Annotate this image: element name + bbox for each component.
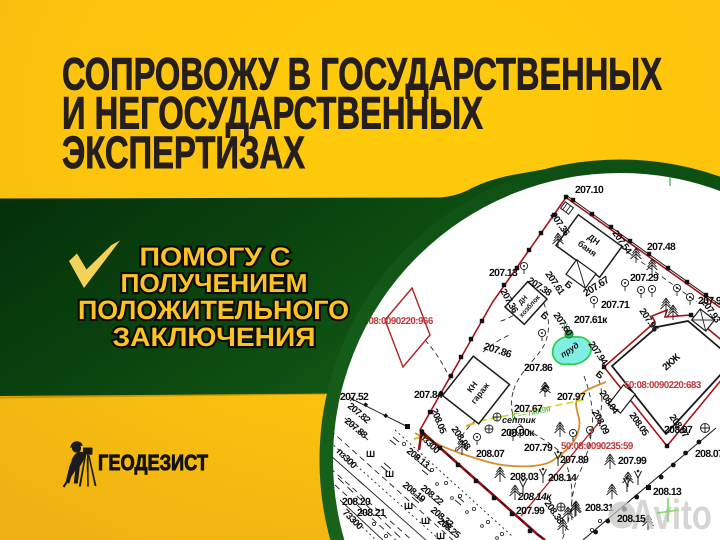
svg-text:207.52: 207.52 bbox=[340, 392, 369, 403]
svg-text:208.15: 208.15 bbox=[617, 514, 646, 525]
svg-text:207.10: 207.10 bbox=[575, 185, 604, 196]
svg-text:207.13: 207.13 bbox=[489, 268, 518, 279]
svg-text:Ш: Ш bbox=[366, 449, 375, 459]
svg-text:207.86: 207.86 bbox=[524, 363, 553, 374]
svg-text:Ш: Ш bbox=[385, 469, 394, 479]
svg-text:Ш: Ш bbox=[421, 516, 430, 526]
svg-text:ЭКСПЕРТИЗАХ: ЭКСПЕРТИЗАХ bbox=[62, 127, 305, 178]
svg-text:207.99: 207.99 bbox=[618, 456, 647, 467]
svg-text:208.21: 208.21 bbox=[357, 508, 386, 519]
svg-text:Ш: Ш bbox=[404, 501, 413, 511]
svg-text:ЗАКЛЮЧЕНИЯ: ЗАКЛЮЧЕНИЯ bbox=[113, 322, 316, 352]
svg-text:208.14: 208.14 bbox=[548, 473, 577, 484]
svg-text:208.07: 208.07 bbox=[476, 449, 505, 460]
svg-text:207.29: 207.29 bbox=[630, 273, 659, 284]
svg-text:208.00к: 208.00к bbox=[501, 428, 535, 439]
svg-text:50:08:0090220:683: 50:08:0090220:683 bbox=[624, 380, 702, 391]
svg-text:ГЕОДЕЗИСТ: ГЕОДЕЗИСТ bbox=[98, 450, 208, 475]
svg-text:207.61к: 207.61к bbox=[574, 315, 608, 326]
svg-text:208.03: 208.03 bbox=[510, 472, 539, 483]
svg-text:207.79: 207.79 bbox=[524, 443, 553, 454]
svg-text:207.84: 207.84 bbox=[414, 390, 443, 401]
svg-text:207.97: 207.97 bbox=[557, 392, 586, 403]
svg-text:50:08:0090235:59: 50:08:0090235:59 bbox=[561, 441, 634, 452]
svg-text:ПОЛУЧЕНИЕМ: ПОЛУЧЕНИЕМ bbox=[121, 268, 308, 298]
svg-text:Ш: Ш bbox=[436, 531, 445, 540]
svg-text:ПОЛОЖИТЕЛЬНОГО: ПОЛОЖИТЕЛЬНОГО bbox=[78, 295, 349, 325]
svg-text:208.20: 208.20 bbox=[342, 497, 371, 508]
svg-text:207.99: 207.99 bbox=[516, 506, 545, 517]
svg-text:ПОМОГУ С: ПОМОГУ С bbox=[140, 241, 291, 271]
svg-text:208.07: 208.07 bbox=[695, 449, 720, 460]
svg-text:207.71: 207.71 bbox=[601, 300, 630, 311]
svg-text:207.89: 207.89 bbox=[560, 455, 589, 466]
svg-text:207.48: 207.48 bbox=[647, 242, 676, 253]
